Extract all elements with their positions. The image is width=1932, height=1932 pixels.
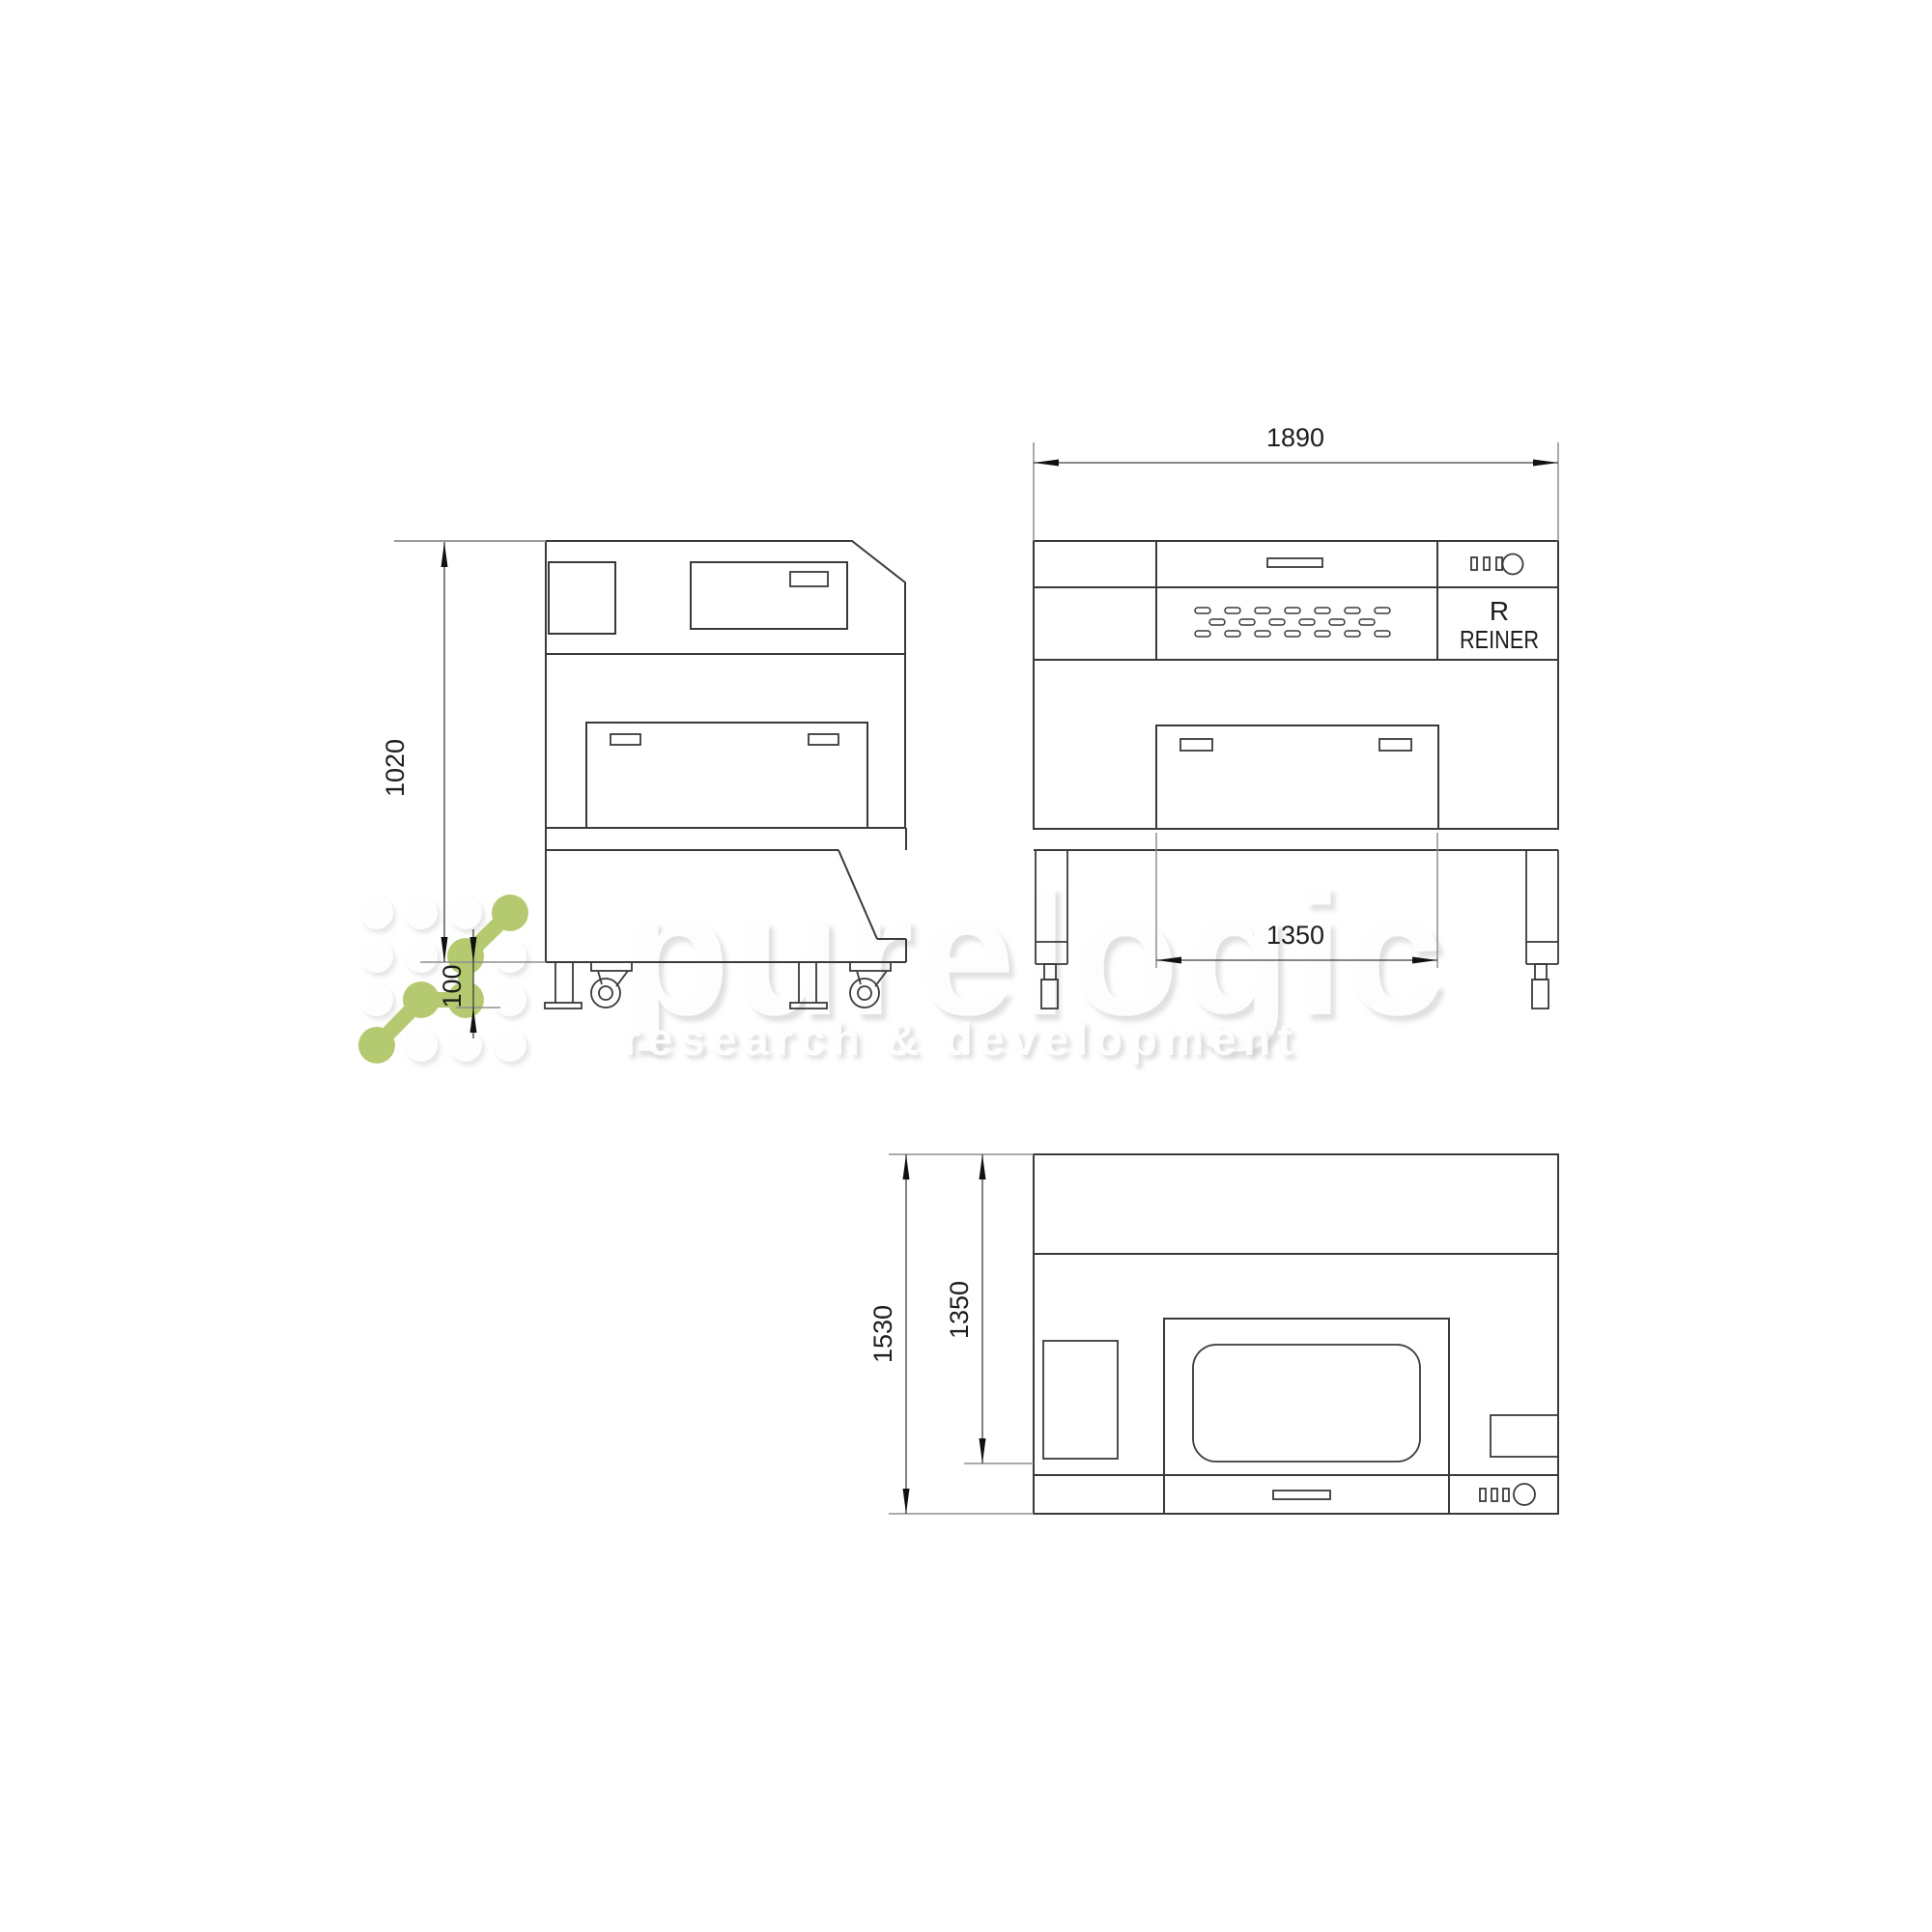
top-indicator-lights [1480, 1489, 1509, 1501]
top-outline [1034, 1154, 1558, 1514]
top-right-component [1491, 1415, 1558, 1457]
top-view [1034, 1154, 1558, 1514]
dimension-top-inner-depth: 1350 [945, 1154, 1034, 1463]
dim-label-side-height: 1020 [381, 739, 410, 797]
watermark-tagline: research & development [623, 1013, 1299, 1065]
top-lid-window [1193, 1345, 1420, 1462]
dim-label-top-depth: 1530 [868, 1305, 897, 1363]
drawing-canvas: purelogic purelogic research & developme… [0, 0, 1932, 1932]
front-top-slot [1267, 558, 1322, 567]
dim-label-front-inner-width: 1350 [1266, 921, 1324, 950]
front-outline [1034, 541, 1558, 829]
caster-wheel [591, 979, 620, 1008]
front-door [1156, 725, 1438, 829]
front-vent-grid [1195, 608, 1390, 637]
dim-label-caster-height: 100 [438, 964, 467, 1008]
brand-badge: R REINER [1460, 596, 1539, 654]
side-top-window-handle [790, 572, 828, 586]
side-top-left-panel [549, 562, 615, 634]
side-door-handle-right [809, 734, 838, 745]
top-lid [1164, 1319, 1449, 1475]
dim-label-top-inner-depth: 1350 [945, 1281, 974, 1339]
front-door-handle-right [1379, 739, 1411, 751]
front-indicator-lights [1471, 557, 1502, 570]
side-door [586, 723, 867, 828]
front-power-button [1503, 554, 1523, 575]
front-leg-right [1526, 850, 1558, 1009]
side-door-handle-left [611, 734, 640, 745]
brand-name: REINER [1460, 625, 1539, 654]
side-top-outline [546, 541, 905, 828]
side-foot-left [545, 962, 582, 1009]
technical-drawing: purelogic purelogic research & developme… [0, 0, 1932, 1932]
top-left-component [1043, 1341, 1118, 1459]
top-power-button [1514, 1484, 1535, 1505]
dim-label-front-width: 1890 [1266, 423, 1324, 452]
brand-initial: R [1490, 596, 1509, 626]
front-caster-wheel-right [1532, 980, 1548, 1009]
dimension-front-width: 1890 [1034, 423, 1558, 541]
top-front-slot [1273, 1491, 1330, 1499]
front-door-handle-left [1180, 739, 1212, 751]
